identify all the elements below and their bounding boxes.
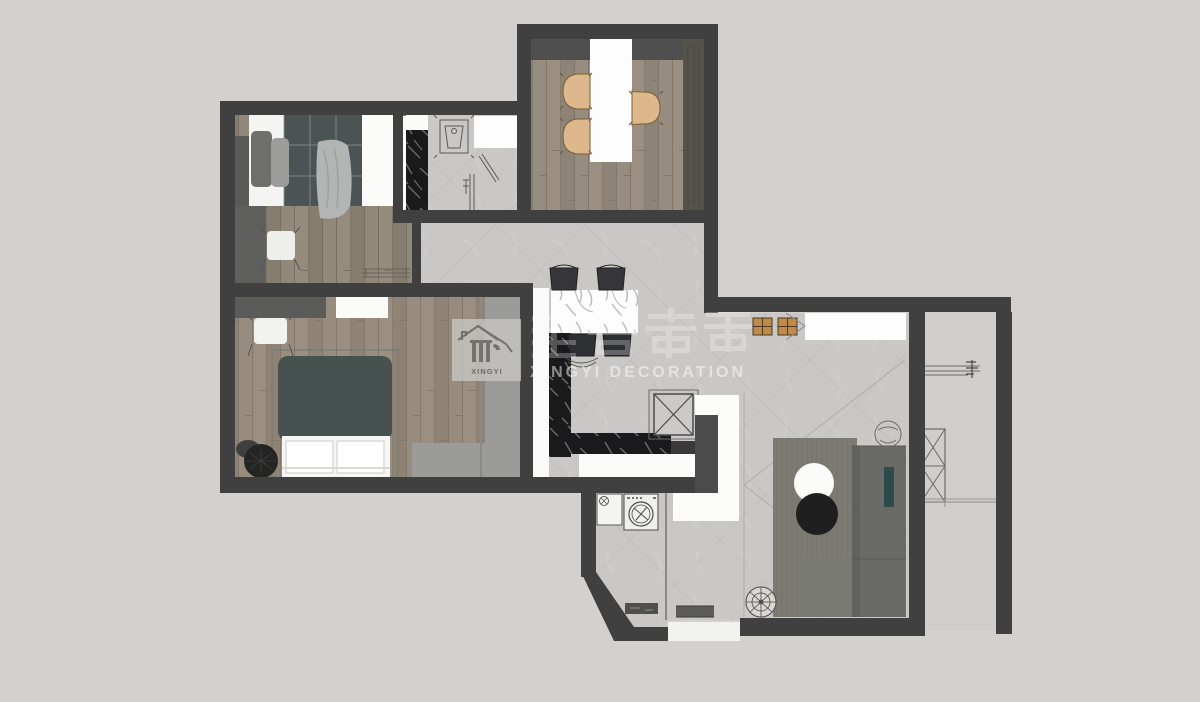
svg-text:XINGYI: XINGYI <box>471 367 502 376</box>
svg-text:XINGYI DECORATION: XINGYI DECORATION <box>530 364 746 381</box>
